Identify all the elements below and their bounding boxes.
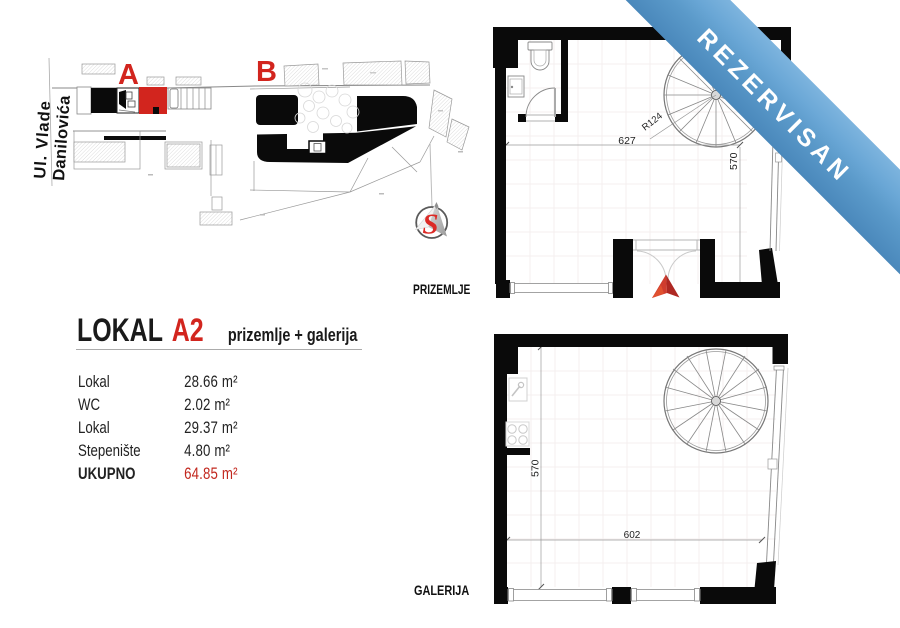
svg-text:602: 602 (624, 530, 641, 541)
svg-text:570: 570 (728, 152, 740, 170)
svg-text:S: S (422, 209, 438, 241)
svg-text:B: B (256, 56, 277, 88)
svg-text:R124: R124 (640, 111, 665, 134)
svg-text:570: 570 (530, 459, 542, 477)
svg-text:627: 627 (618, 135, 636, 147)
svg-text:A: A (118, 59, 139, 91)
